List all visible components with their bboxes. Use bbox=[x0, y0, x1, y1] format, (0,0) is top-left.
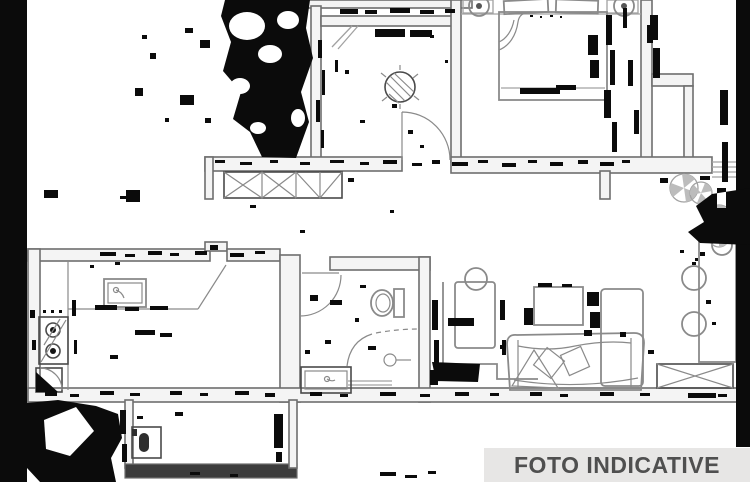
wall-chamfer-lines bbox=[332, 26, 358, 49]
dining-table-icon bbox=[699, 240, 736, 362]
desk-icon bbox=[455, 282, 495, 348]
bed-icon bbox=[499, 12, 607, 100]
wall-mid-cap bbox=[205, 157, 213, 199]
kitchen-furniture bbox=[36, 261, 226, 392]
photo-indicative-label: FOTO INDICATIVE bbox=[514, 452, 720, 479]
wall-stub-living bbox=[600, 171, 610, 199]
dining-chair-2 bbox=[682, 312, 706, 336]
left-black-bar bbox=[0, 0, 27, 482]
door-bedroom bbox=[402, 112, 450, 160]
wall-kitchen-top-left bbox=[28, 249, 210, 261]
sofa-icon bbox=[507, 333, 644, 390]
wall-laundry-bottom bbox=[125, 464, 297, 478]
door-bathroom bbox=[300, 273, 341, 316]
kitchen-counter bbox=[68, 261, 226, 390]
tall-cabinet-icon bbox=[601, 289, 643, 386]
wall-bathroom-right bbox=[419, 257, 430, 402]
scan-artifacts bbox=[0, 0, 750, 482]
bathroom-vanity-icon bbox=[301, 367, 351, 393]
walls bbox=[28, 0, 750, 478]
wall-kitchen-bath-divider bbox=[280, 255, 300, 402]
wardrobe-icon bbox=[224, 172, 342, 198]
hallway-plant-icon bbox=[381, 65, 419, 109]
wall-bathroom-top bbox=[330, 257, 430, 270]
wall-bedroom-left bbox=[451, 0, 461, 162]
bathroom-furniture bbox=[301, 289, 418, 393]
shower-icon bbox=[347, 329, 418, 385]
living-room-furniture bbox=[443, 235, 736, 390]
floor-plan bbox=[0, 0, 750, 482]
wall-mid-right bbox=[451, 157, 712, 173]
photo-indicative-badge: FOTO INDICATIVE bbox=[484, 448, 750, 482]
wall-laundry-right bbox=[289, 400, 297, 468]
washing-machine-icon bbox=[132, 427, 161, 458]
wall-hatch-dashes-kitchen bbox=[30, 245, 265, 359]
radiator-bench-icon bbox=[657, 364, 733, 388]
wall-hallway-inner-top bbox=[321, 16, 455, 26]
wall-top-outer bbox=[308, 0, 472, 8]
dining-chair-1 bbox=[682, 266, 706, 290]
scan-noise-bedroom bbox=[520, 8, 660, 152]
stove-icon bbox=[39, 310, 68, 364]
wall-hallway-left bbox=[311, 6, 321, 162]
coffee-table-icon bbox=[534, 287, 583, 325]
kitchen-sink-icon bbox=[104, 279, 146, 307]
desk-stool bbox=[465, 268, 487, 290]
floor-plan-screenshot: FOTO INDICATIVE bbox=[0, 0, 750, 482]
toilet-icon bbox=[371, 289, 404, 317]
wall-niche-vertical bbox=[684, 86, 693, 162]
